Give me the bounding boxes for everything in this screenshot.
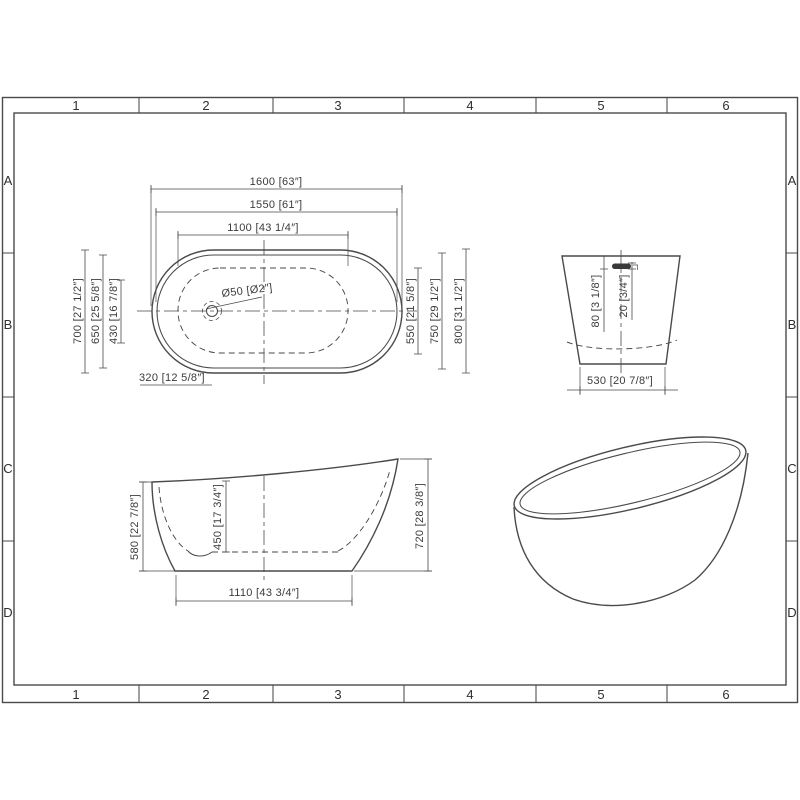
zone-label: 3: [334, 98, 341, 113]
perspective-rim-inner: [514, 427, 745, 528]
plan-dim-800: 800 [31 1/2″]: [453, 278, 465, 344]
zone-label: 5: [597, 687, 604, 702]
side-dim-450: 450 [17 3/4″]: [212, 484, 224, 550]
row-label: B: [788, 317, 797, 332]
zone-labels-top: 1 2 3 4 5 6: [72, 98, 729, 113]
tub-inner-rim: [157, 255, 397, 368]
side-dim-580: 580 [22 7/8″]: [129, 494, 141, 560]
right-row-dividers: [786, 253, 798, 541]
plan-dim-430: 430 [16 7/8″]: [108, 278, 120, 344]
plan-dim-1600: 1600 [63″]: [250, 176, 303, 188]
left-row-dividers: [3, 253, 15, 541]
end-view: 80 [3 1/8″] 20 [3/4″] 530 [20 7/8″]: [562, 250, 680, 395]
drain-leader-line: [206, 297, 262, 309]
tub-outer-rim: [152, 250, 402, 373]
row-label: C: [3, 461, 12, 476]
zone-label: 3: [334, 687, 341, 702]
end-basin-hidden-line: [567, 340, 677, 349]
row-label: C: [787, 461, 796, 476]
zone-labels-bottom: 1 2 3 4 5 6: [72, 687, 729, 702]
zone-label: 6: [722, 687, 729, 702]
plan-dim-1100: 1100 [43 1/4″]: [227, 222, 299, 234]
outer-border: [3, 98, 798, 703]
overflow-fitting: [612, 264, 631, 270]
drawing-frame: 1 2 3 4 5 6 1 2 3 4 5 6 A B C D A B C D: [3, 98, 798, 703]
side-view: 580 [22 7/8″] 450 [17 3/4″] 720 [28 3/8″…: [129, 459, 432, 606]
bathtub-technical-drawing: 1 2 3 4 5 6 1 2 3 4 5 6 A B C D A B C D: [0, 0, 800, 800]
side-inner-wall-right: [338, 470, 390, 551]
tub-basin-hidden-line: [178, 268, 348, 353]
perspective-rim-outer: [507, 420, 753, 536]
row-label: A: [4, 173, 13, 188]
zone-label: 5: [597, 98, 604, 113]
plan-dim-550: 550 [21 5/8″]: [405, 278, 417, 344]
side-dim-720: 720 [28 3/8″]: [414, 483, 426, 549]
zone-label: 2: [202, 687, 209, 702]
zone-label: 1: [72, 687, 79, 702]
perspective-view: [507, 420, 753, 605]
plan-dim-750: 750 [29 1/2″]: [429, 278, 441, 344]
plan-dim-1550: 1550 [61″]: [250, 199, 303, 211]
bottom-zone-dividers: [139, 685, 667, 703]
top-zone-dividers: [139, 98, 667, 114]
row-label: D: [3, 605, 12, 620]
plan-dim-320: 320 [12 5/8″]: [139, 372, 205, 384]
side-inner-wall-left: [159, 487, 188, 551]
zone-label: 4: [466, 98, 473, 113]
row-label: A: [788, 173, 797, 188]
end-dim-530-line: [567, 386, 678, 394]
end-dim-80: 80 [3 1/8″]: [590, 274, 602, 327]
side-dim-1110: 1110 [43 3/4″]: [229, 587, 300, 599]
drain-label: Ø50 [Ø2″]: [221, 282, 273, 300]
plan-dim-650: 650 [25 5/8″]: [90, 278, 102, 344]
end-dim-530: 530 [20 7/8″]: [587, 375, 653, 387]
side-drain-recess: [188, 551, 212, 556]
end-dim-20: 20 [3/4″]: [618, 274, 630, 317]
plan-dim-700: 700 [27 1/2″]: [72, 278, 84, 344]
zone-label: 6: [722, 98, 729, 113]
plan-view: 1600 [63″] 1550 [61″] 1100 [43 1/4″] Ø50…: [72, 176, 470, 385]
side-outline: [152, 459, 398, 571]
row-label: D: [787, 605, 796, 620]
inner-border: [14, 113, 786, 685]
zone-label: 1: [72, 98, 79, 113]
row-label: B: [4, 317, 13, 332]
zone-label: 2: [202, 98, 209, 113]
zone-label: 4: [466, 687, 473, 702]
